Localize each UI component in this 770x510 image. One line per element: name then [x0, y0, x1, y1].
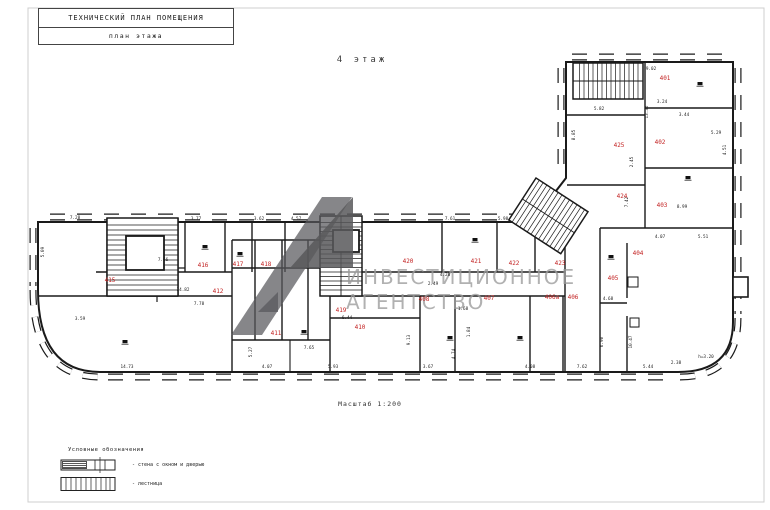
room-number-label: 424	[617, 193, 628, 200]
room-number-label: 423	[555, 260, 566, 267]
dimension-label: 13.36	[644, 105, 650, 118]
dimension-label: 3.44	[679, 112, 690, 118]
room-number-label: 419	[336, 307, 347, 314]
dimension-label: 4.07	[262, 364, 273, 370]
dimension-label: 9.02	[646, 66, 657, 72]
dimension-label: 4.74	[451, 348, 457, 359]
dimension-label: 7.28	[70, 215, 81, 221]
legend-label-window-wall: - стена с окном и дверью	[132, 462, 204, 468]
room-number-label: 406	[568, 294, 579, 301]
title-block-line2: план этажа	[39, 28, 233, 44]
dimension-label: 3.62	[254, 216, 265, 222]
legend-label-stairs: - лестница	[132, 481, 162, 487]
dimension-label: 1.84	[466, 326, 472, 337]
room-number-label: 418	[261, 261, 272, 268]
dimension-label: 2.45	[629, 156, 635, 167]
room-number-label: 411	[271, 330, 282, 337]
dimension-label: 5.44	[643, 364, 654, 370]
dimension-label: h=3.20	[698, 354, 714, 360]
stairs-symbol	[60, 476, 122, 492]
dimension-label: 4.20	[440, 272, 451, 278]
room-number-label: 412	[213, 288, 224, 295]
room-number-label: 402	[655, 139, 666, 146]
room-number-label: 408	[419, 296, 430, 303]
room-number-label: 405	[608, 275, 619, 282]
dimension-label: 7.65	[304, 345, 315, 351]
dimension-label: 4.07	[655, 234, 666, 240]
dimension-label: 8.99	[677, 204, 688, 210]
dimension-label: 4.68	[603, 296, 614, 302]
dimension-label: 14.82	[177, 287, 190, 293]
dimension-label: 6.44	[342, 315, 353, 321]
dimension-label: 5.93	[328, 364, 339, 370]
dimension-label: 3.67	[423, 364, 434, 370]
legend: Условные обозначения - стена с окном и д…	[60, 447, 204, 495]
room-number-label: 425	[614, 142, 625, 149]
room-number-label: 421	[471, 258, 482, 265]
room-number-label: 404	[633, 250, 644, 257]
floor-plan-canvas: ИНВЕСТИЦИОННОЕАГЕНТСТВО9.023.243.445.294…	[0, 0, 770, 510]
room-number-label: 410	[355, 324, 366, 331]
room-number-label: 422	[509, 260, 520, 267]
dimension-label: 4.57	[291, 216, 302, 222]
title-block-line1: ТЕХНИЧЕСКИЙ ПЛАН ПОМЕЩЕНИЯ	[39, 9, 233, 28]
dimension-label: 5.27	[248, 346, 254, 357]
dimension-label: 3.24	[657, 99, 668, 105]
dimension-label: 5.98	[498, 216, 509, 222]
title-block: ТЕХНИЧЕСКИЙ ПЛАН ПОМЕЩЕНИЯ план этажа	[38, 8, 234, 45]
dimension-label: 7.61	[445, 216, 456, 222]
dimension-label: 1.68	[458, 306, 469, 312]
dimension-label: 2.49	[428, 281, 439, 287]
dimension-label: 5.09	[40, 246, 46, 257]
room-number-label: 420	[403, 258, 414, 265]
technical-plan-sheet: ИНВЕСТИЦИОННОЕАГЕНТСТВО9.023.243.445.294…	[0, 0, 770, 510]
dimension-label: 7.78	[194, 301, 205, 307]
floor-label: 4 этаж	[287, 55, 437, 65]
dimension-label: 6.90	[599, 336, 605, 347]
dimension-label: 14.73	[121, 364, 134, 370]
scale-label: Масштаб 1:200	[295, 400, 445, 408]
room-number-label: 401	[660, 75, 671, 82]
dimension-label: 2.38	[671, 360, 682, 366]
dimension-label: 3.77	[191, 216, 202, 222]
dimension-label: 4.51	[722, 144, 728, 155]
room-number-label: 416	[198, 262, 209, 269]
dimension-label: 4.08	[525, 364, 536, 370]
legend-title: Условные обозначения	[68, 447, 204, 453]
dimension-label: 10.47	[628, 335, 634, 348]
watermark-line1: ИНВЕСТИЦИОННОЕ	[346, 265, 576, 289]
dimension-label: 5.29	[711, 130, 722, 136]
legend-item-window-wall: - стена с окном и дверью	[60, 457, 204, 473]
dimension-label: 7.62	[577, 364, 588, 370]
room-number-label: 415	[105, 277, 116, 284]
dimension-label: 5.82	[594, 106, 605, 112]
dimension-label: 7.66	[158, 257, 169, 263]
window-wall-symbol	[60, 457, 122, 473]
room-number-label: 417	[233, 261, 244, 268]
dimension-label: 9.13	[406, 334, 412, 345]
dimension-label: 8.85	[571, 129, 577, 140]
legend-item-stairs: - лестница	[60, 476, 204, 492]
dimension-label: 3.59	[75, 316, 86, 322]
room-number-label: 407	[484, 295, 495, 302]
room-number-label: 406а	[545, 294, 560, 301]
room-number-label: 403	[657, 202, 668, 209]
dimension-label: 5.51	[698, 234, 709, 240]
